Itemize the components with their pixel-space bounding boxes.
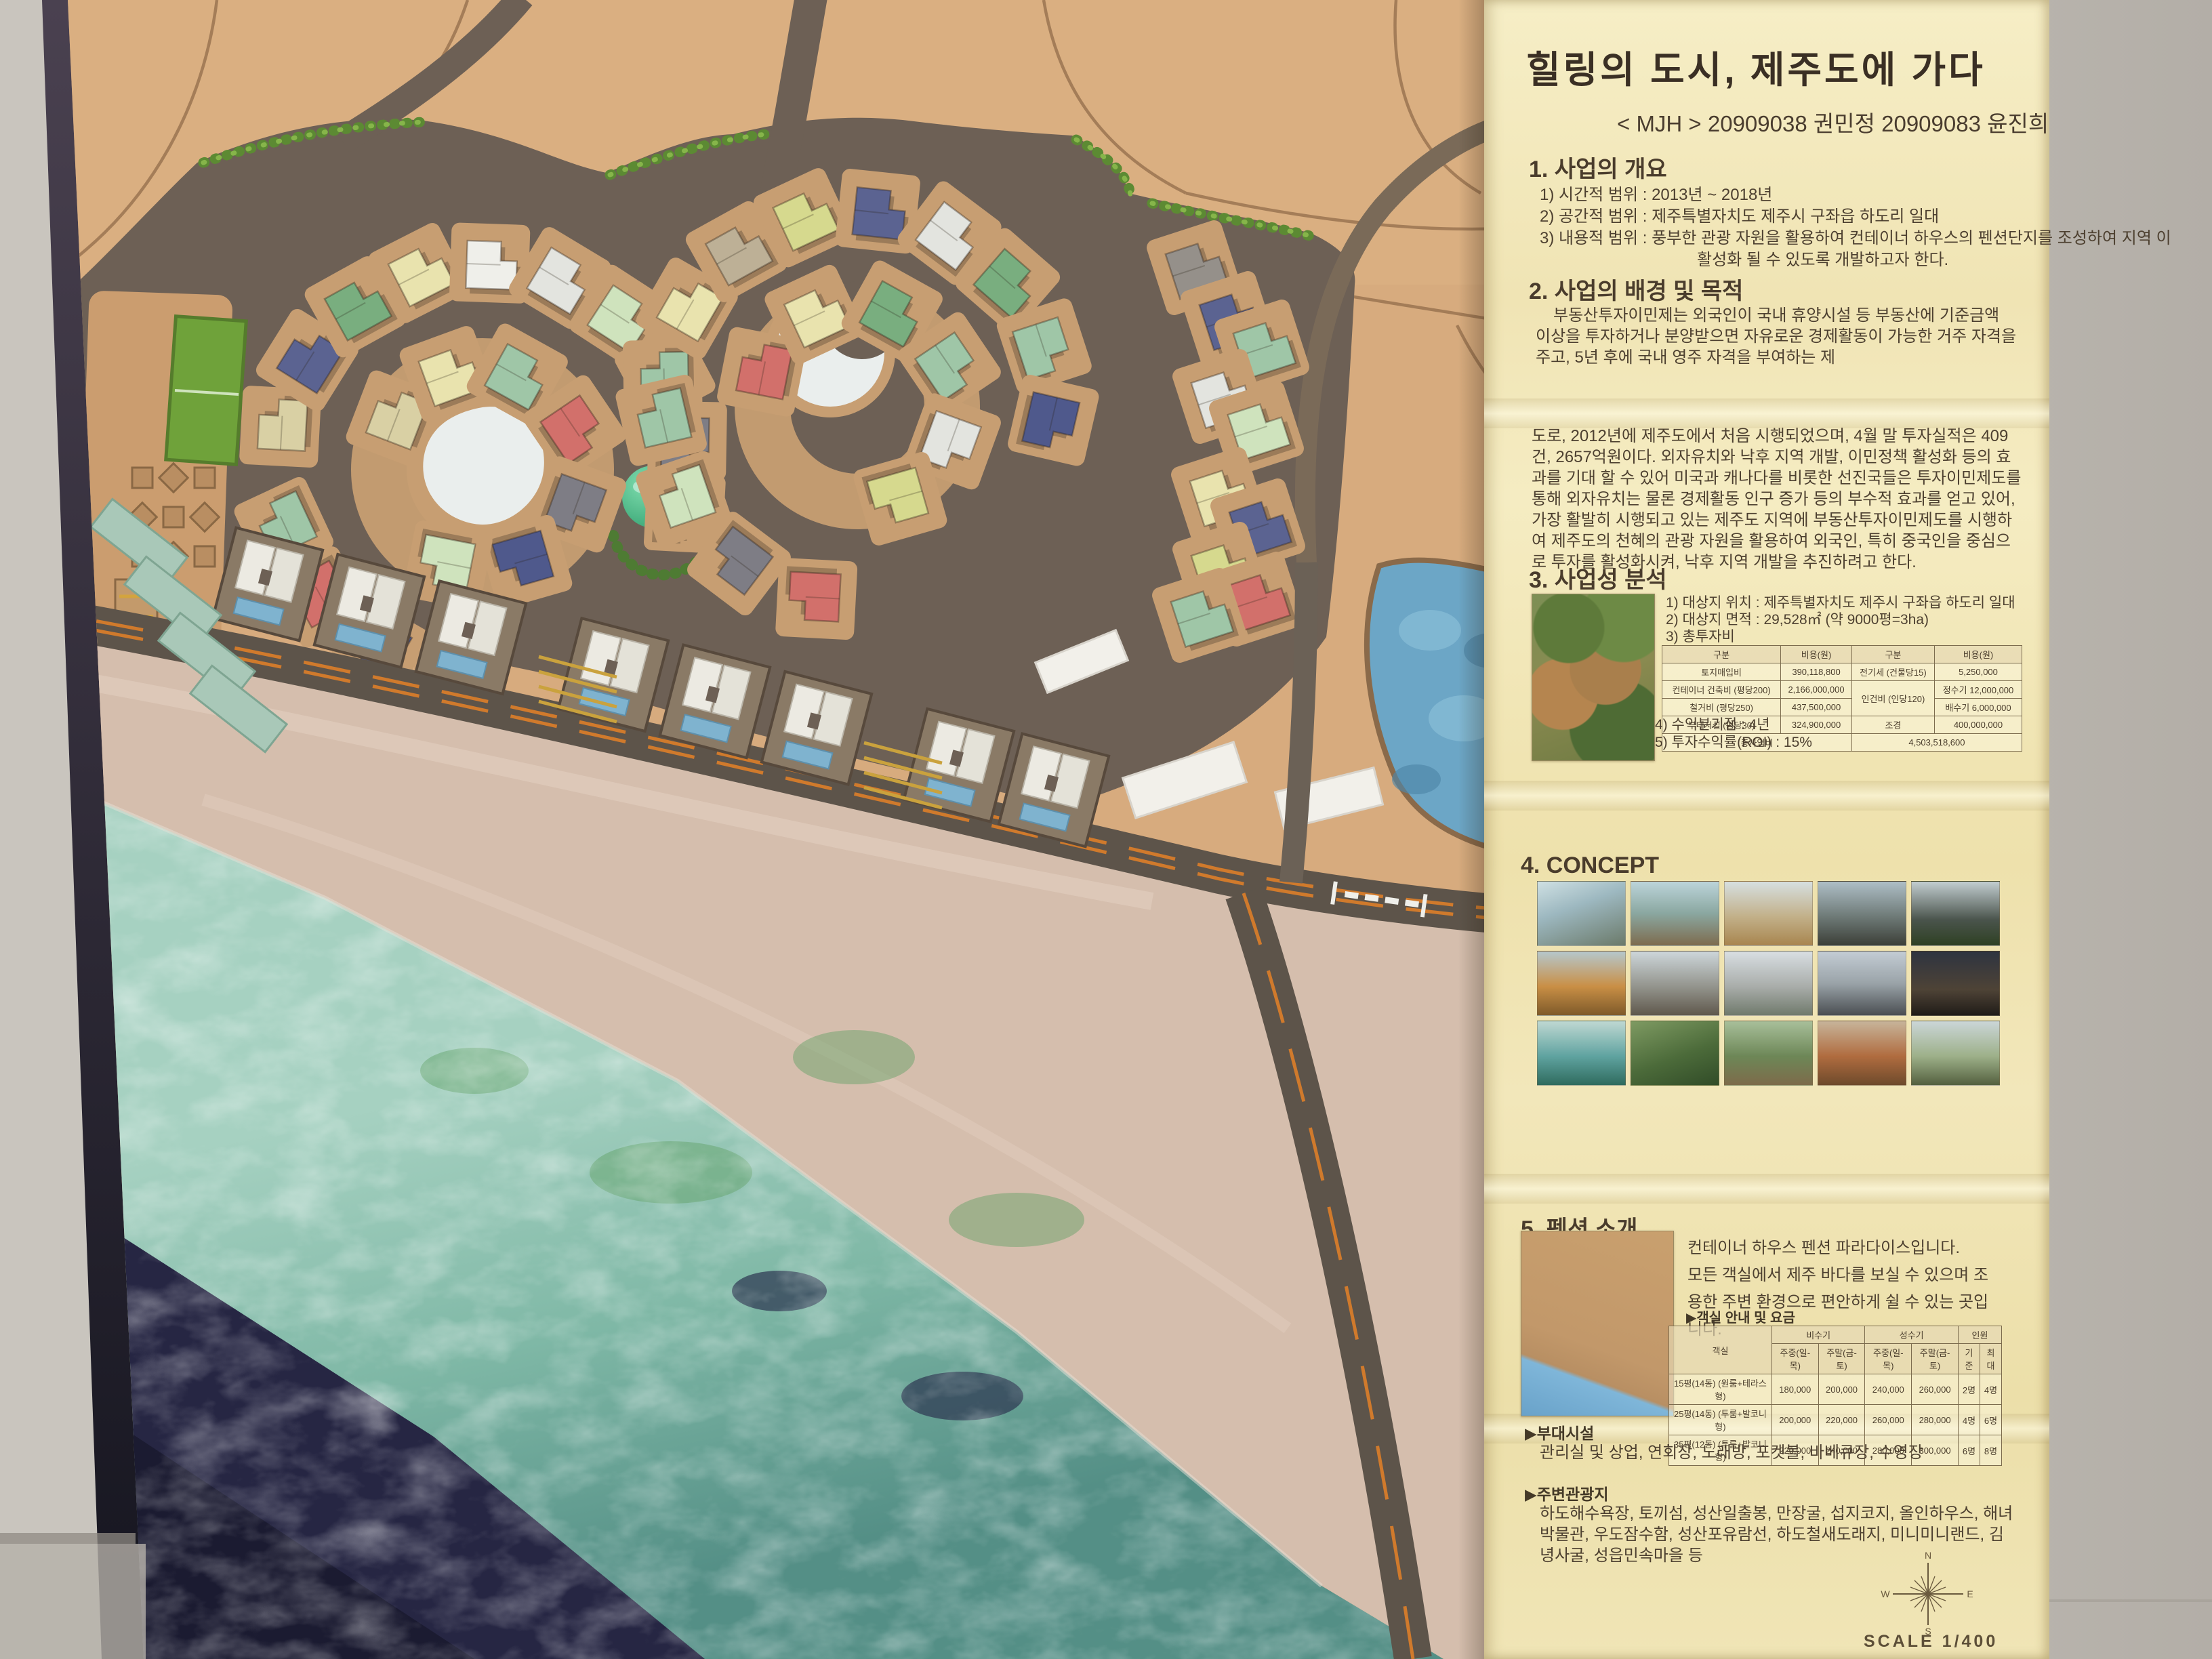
section2-heading: 2. 사업의 배경 및 목적 — [1529, 272, 1743, 306]
page-title: 힐링의 도시, 제주도에 가다 — [1526, 39, 1986, 94]
svg-text:W: W — [1881, 1589, 1890, 1599]
concept-photo — [1537, 881, 1626, 946]
table-cell: 180,000 — [1771, 1374, 1818, 1405]
aerial-photo — [1532, 594, 1655, 761]
model-house — [775, 558, 858, 640]
table-cell: 컨테이너 건축비 (평당200) — [1662, 681, 1781, 699]
info-panel: 힐링의 도시, 제주도에 가다 < MJH > 20909038 권민정 209… — [1484, 0, 2049, 1659]
scale-label: SCALE 1/400 — [1864, 1632, 1998, 1652]
table-cell: 조경 — [1851, 716, 1934, 734]
concept-photo — [1818, 881, 1906, 946]
section3-item: 1) 대상지 위치 : 제주특별자치도 제주시 구좌읍 하도리 일대 — [1666, 595, 2015, 611]
table-cell: 220,000 — [1818, 1405, 1865, 1435]
table-cell: 200,000 — [1771, 1405, 1818, 1435]
section1-item: 1) 시간적 범위 : 2013년 ~ 2018년 — [1540, 184, 2014, 206]
concept-photo — [1724, 1021, 1813, 1086]
photo-of-architecture-model-board: 힐링의 도시, 제주도에 가다 < MJH > 20909038 권민정 209… — [0, 0, 2212, 1659]
concept-photo-grid — [1537, 881, 2000, 1086]
table-cell: 주말(금-토) — [1912, 1344, 1959, 1374]
section3-item: 3) 총투자비 — [1666, 629, 1735, 645]
table-cell: 토지매입비 — [1662, 663, 1781, 681]
section3-item: 2) 대상지 면적 : 29,528㎡ (약 9000평=3ha) — [1666, 612, 1929, 628]
authors-line: < MJH > 20909038 권민정 20909083 윤진희 — [1617, 106, 2049, 138]
compass-rose-icon: N E S W — [1870, 1552, 1986, 1640]
pension-render-photo — [1521, 1231, 1674, 1416]
section1-item: 2) 공간적 범위 : 제주특별자치도 제주시 구좌읍 하도리 일대 — [1540, 206, 2014, 228]
table-cell: 철거비 (평당250) — [1662, 699, 1781, 716]
attractions-label: ▶주변관광지 — [1525, 1481, 1609, 1504]
facilities-text: 관리실 및 상업, 연회장, 노래방, 포켓볼, 바베큐장, 수영장 — [1540, 1442, 2028, 1463]
table-cell: 구분 — [1851, 646, 1934, 663]
table-cell: 2명 — [1958, 1374, 1980, 1405]
table-cell: 구분 — [1662, 646, 1781, 663]
table-cell: 비수기 — [1771, 1326, 1865, 1344]
svg-text:E: E — [1967, 1589, 1973, 1599]
table-cell: 비용(원) — [1934, 646, 2022, 663]
table-cell: 2,166,000,000 — [1781, 681, 1852, 699]
paper-crease — [1484, 1174, 2049, 1204]
table-cell: 200,000 — [1818, 1374, 1865, 1405]
section1-heading: 1. 사업의 개요 — [1529, 150, 1667, 184]
concept-photo — [1631, 951, 1719, 1016]
table-cell: 390,118,800 — [1781, 663, 1852, 681]
table-cell: 비용(원) — [1781, 646, 1852, 663]
concept-photo — [1537, 1021, 1626, 1086]
concept-photo — [1911, 951, 2000, 1016]
section2-paragraph1: 부동산투자이민제는 외국인이 국내 휴양시설 등 부동산에 기준금액 이상을 투… — [1536, 305, 2018, 368]
table-cell: 15평(14동) (원룸+테라스형) — [1669, 1374, 1772, 1405]
room-table-label: ▶객실 안내 및 요금 — [1686, 1307, 1795, 1326]
table-cell: 주중(일-목) — [1771, 1344, 1818, 1374]
table-cell: 260,000 — [1865, 1405, 1912, 1435]
table-cell: 전기세 (건물당15) — [1851, 663, 1934, 681]
table-cell: 4,503,518,600 — [1851, 734, 2022, 752]
svg-text:N: N — [1925, 1552, 1931, 1561]
section3-heading: 3. 사업성 분석 — [1529, 561, 1667, 594]
table-cell: 객실 — [1669, 1326, 1772, 1374]
concept-photo — [1818, 951, 1906, 1016]
table-cell: 400,000,000 — [1934, 716, 2022, 734]
concept-photo — [1537, 951, 1626, 1016]
table-cell: 324,900,000 — [1781, 716, 1852, 734]
facilities-label: ▶부대시설 — [1525, 1420, 1594, 1443]
paper-crease — [1484, 398, 2049, 428]
table-cell: 6명 — [1980, 1405, 2001, 1435]
table-cell: 주말(금-토) — [1818, 1344, 1865, 1374]
concept-photo — [1911, 881, 2000, 946]
table-cell: 기준 — [1958, 1344, 1980, 1374]
table-cell: 240,000 — [1865, 1374, 1912, 1405]
table-cell: 주중(일-목) — [1865, 1344, 1912, 1374]
table-cell: 정수기 12,000,000 — [1934, 681, 2022, 699]
table-cell: 5,250,000 — [1934, 663, 2022, 681]
concept-photo — [1818, 1021, 1906, 1086]
table-cell: 성수기 — [1865, 1326, 1959, 1344]
panel-shadow — [1458, 0, 1486, 1659]
concept-photo — [1631, 881, 1719, 946]
table-cell: 280,000 — [1912, 1405, 1959, 1435]
paper-crease — [1484, 781, 2049, 811]
concept-photo — [1631, 1021, 1719, 1086]
wall-baseboard — [0, 1533, 136, 1544]
table-cell: 4명 — [1980, 1374, 2001, 1405]
table-cell: 인건비 (인당120) — [1851, 681, 1934, 716]
table-cell: 최대 — [1980, 1344, 2001, 1374]
section3-item2: 4) 수익분기점 : 4년 — [1655, 717, 1770, 733]
table-cell: 25평(14동) (투룸+발코니형) — [1669, 1405, 1772, 1435]
wall-seam — [2049, 1599, 2212, 1602]
table-cell: 437,500,000 — [1781, 699, 1852, 716]
floor — [0, 1544, 146, 1659]
section1-item: 3) 내용적 범위 : 풍부한 관광 자원을 활용하여 컨테이너 하우스의 펜션… — [1540, 228, 2175, 271]
table-cell: 260,000 — [1912, 1374, 1959, 1405]
concept-photo — [1724, 951, 1813, 1016]
concept-photo — [1724, 881, 1813, 946]
section4-heading: 4. CONCEPT — [1521, 853, 1659, 879]
pension-intro1: 컨테이너 하우스 펜션 파라다이스입니다. — [1687, 1235, 1994, 1262]
table-cell: 4명 — [1958, 1405, 1980, 1435]
section2-paragraph2: 도로, 2012년에 제주도에서 처음 시행되었으며, 4월 말 투자실적은 4… — [1532, 426, 2022, 573]
table-cell: 배수기 6,000,000 — [1934, 699, 2022, 716]
table-cell: 인원 — [1958, 1326, 2001, 1344]
section3-item2: 5) 투자수익률(ROI) : 15% — [1655, 735, 1812, 751]
concept-photo — [1911, 1021, 2000, 1086]
